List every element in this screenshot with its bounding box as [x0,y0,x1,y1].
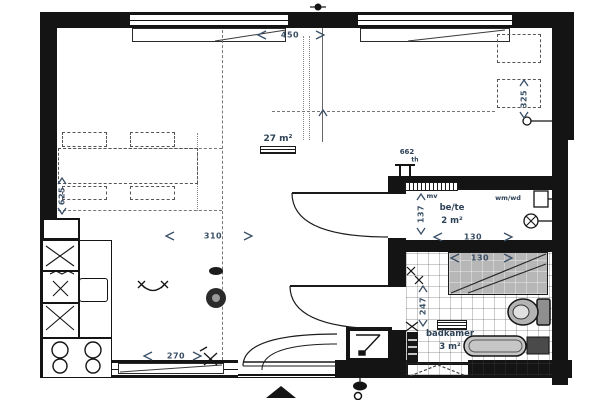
dim-bathroom-depth: 247 [419,297,428,315]
vertical-radiator-icon [406,322,418,362]
wall-socket-icon-right [523,117,552,125]
dim-left-depth: 625 [58,187,67,205]
tilt-window-symbol [410,365,466,376]
floor-socket-icons [353,378,367,400]
label-electrical-code: 662 [400,148,415,156]
floor-plan: 450 310 270 625 325 130 137 130 247 27 m… [0,0,600,400]
kitchen-faucet-icon [50,271,74,296]
switch-icon [200,347,217,365]
washer-connection-icon [534,191,552,207]
dim-top-width: 450 [281,31,299,40]
door-bathroom [290,286,388,329]
dim-shower-width: 130 [471,254,489,263]
dim-bottom-width: 270 [167,352,185,361]
shower-drain-lines [451,254,546,293]
label-washer: wm/wd [495,194,521,202]
label-bathroom-name: badkamer [426,329,474,339]
label-thermostat: th [411,157,418,164]
ceiling-light-icon [206,288,226,308]
water-valve-icons [407,267,423,284]
washbasin-icon [464,336,549,356]
label-storage-name: be/te [440,203,465,213]
dim-right-depth: 325 [520,90,529,108]
label-vent: mv [426,192,437,200]
label-storage-area: 2 m² [441,216,462,226]
standpipe-symbol [356,335,380,355]
dimension-arrows [58,31,528,360]
socket-662-icons [395,165,415,176]
toilet-icon [508,299,550,325]
label-living-area: 27 m² [264,134,293,144]
dim-storage-width: 130 [464,233,482,242]
washer-valve-icon [524,214,552,228]
door-entrance [243,334,337,370]
window-opening-lines [120,30,505,372]
dim-living-width: 310 [204,232,222,241]
entrance-arrow [266,386,296,398]
cooktop-burners [52,342,101,373]
dim-storage-depth: 137 [417,205,426,223]
wall-light-icon [209,267,223,275]
label-bathroom-area: 3 m² [439,342,460,352]
door-storage [292,193,388,237]
junction-box-icon [310,4,326,11]
sensor-icon [138,281,168,291]
